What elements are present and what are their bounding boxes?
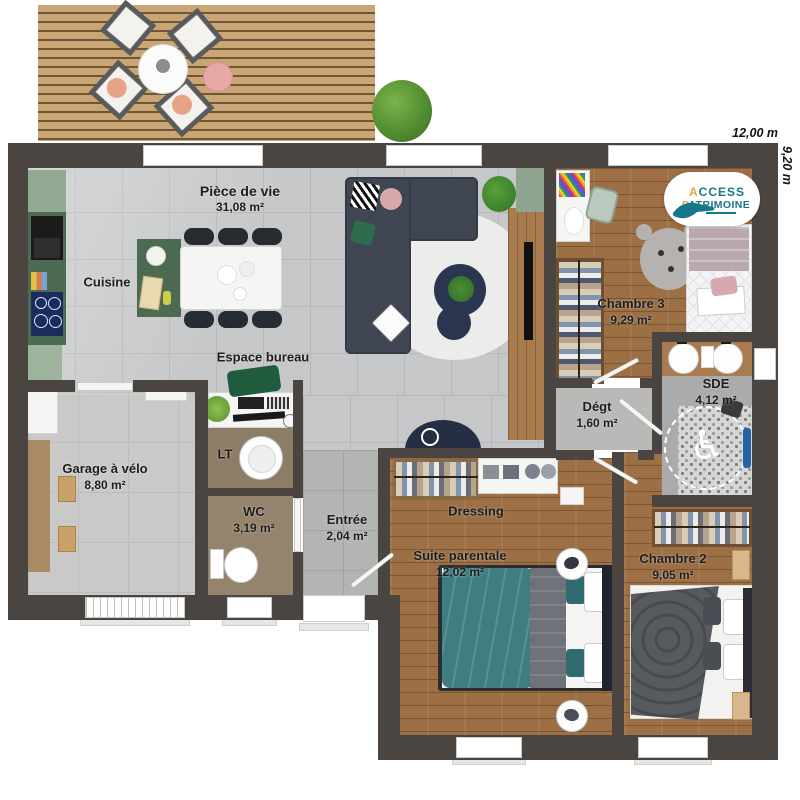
induction-hob xyxy=(31,292,63,336)
window-sde xyxy=(754,348,776,380)
kitchen-shelf-items xyxy=(31,272,47,290)
dining-chair xyxy=(252,311,282,328)
terrace-side-table xyxy=(203,62,233,92)
wc-interior-door xyxy=(294,498,301,552)
suite-nightstand xyxy=(556,548,588,580)
label-espace-bureau: Espace bureau xyxy=(217,350,310,367)
dimension-width: 12,00 m xyxy=(700,126,778,140)
suite-bed xyxy=(438,565,614,691)
wall-lt-wc xyxy=(208,488,293,496)
front-door xyxy=(303,595,365,622)
label-garage: Garage à vélo8,80 m² xyxy=(62,461,147,493)
dressing-cabinet xyxy=(560,487,584,505)
wheelchair-icon: ♿ xyxy=(683,418,731,474)
wall-garage-east xyxy=(195,380,208,595)
wall-accent-green xyxy=(516,168,544,212)
kitchen-range xyxy=(31,216,63,260)
step-wc xyxy=(222,619,277,626)
wall-sde-west xyxy=(652,332,662,454)
garage-interior-door xyxy=(77,382,133,391)
label-chambre2: Chambre 29,05 m² xyxy=(639,551,706,583)
label-cuisine: Cuisine xyxy=(84,275,131,292)
pillow-pink xyxy=(380,188,402,210)
dimension-height: 9,20 m xyxy=(780,146,794,216)
chambre2-nightstand xyxy=(732,550,750,580)
wall-wc-east-a xyxy=(293,380,303,498)
wall-sde-chambre2 xyxy=(652,495,752,507)
chambre2-wardrobe xyxy=(652,509,752,547)
dining-chair xyxy=(184,228,214,245)
wall-sde-north xyxy=(652,332,752,342)
suite-nightstand xyxy=(556,700,588,732)
window-living xyxy=(386,145,482,166)
tree xyxy=(372,80,432,142)
label-chambre3: Chambre 39,29 m² xyxy=(597,296,664,328)
garage-stool xyxy=(58,526,76,552)
label-suite-parentale: Suite parentale12,02 m² xyxy=(413,548,506,580)
label-dressing: Dressing xyxy=(448,504,504,521)
dining-chair xyxy=(218,311,248,328)
chambre2-nightstand xyxy=(732,692,750,720)
terrace-table xyxy=(138,44,188,94)
step-garage xyxy=(80,619,190,626)
garage-exterior-door xyxy=(85,597,185,618)
wall-degt-north-b xyxy=(640,378,654,388)
sde-vanity xyxy=(662,338,752,376)
step-entrance xyxy=(299,623,369,631)
wall-south-right xyxy=(378,735,778,760)
pillow-checkered xyxy=(350,181,380,211)
side-table xyxy=(437,306,471,340)
wall-living-chambre3 xyxy=(544,166,556,456)
label-degt: Dégt1,60 m² xyxy=(576,399,617,431)
floor-plan: 12,00 m 9,20 m xyxy=(0,0,800,800)
window-chambre2 xyxy=(638,737,708,758)
window-suite xyxy=(456,737,522,758)
brand-logo: ACCESS PATRIMOINE xyxy=(664,172,760,226)
dining-chair xyxy=(252,228,282,245)
wall-suite-west xyxy=(378,448,390,735)
wall-west xyxy=(8,143,28,620)
window-kitchen xyxy=(143,145,263,166)
wall-degt-north-a xyxy=(556,378,592,388)
wall-east xyxy=(752,143,778,760)
wall-degt-south-a xyxy=(556,450,594,460)
dressing-shelf xyxy=(478,458,558,494)
toilet-bowl xyxy=(224,547,258,583)
dining-table xyxy=(180,246,282,310)
kitchen-cabinet-lower xyxy=(28,345,62,381)
wall-wc-east-b xyxy=(293,552,303,595)
wall-degt-south-b xyxy=(638,450,654,460)
dining-chair xyxy=(218,228,248,245)
window-chambre3 xyxy=(608,145,708,166)
chambre3-bed xyxy=(686,224,752,338)
kitchen-island xyxy=(137,239,181,317)
label-piece-de-vie: Pièce de vie31,08 m² xyxy=(200,182,280,216)
towel-rail xyxy=(743,428,751,468)
label-sde: SDE4,12 m² xyxy=(695,376,736,408)
tv xyxy=(524,242,533,340)
chambre3-desk xyxy=(556,170,590,242)
wall-suite-chambre2 xyxy=(612,452,624,735)
wall-garage-north-a xyxy=(28,380,75,392)
plant xyxy=(482,176,516,212)
hand-icon xyxy=(671,196,717,220)
label-lt: LT xyxy=(218,447,233,464)
toilet-tank xyxy=(210,549,224,579)
wall-dressing-north xyxy=(390,448,556,458)
label-entree: Entrée2,04 m² xyxy=(326,512,367,544)
dining-chair xyxy=(184,311,214,328)
label-wc: WC3,19 m² xyxy=(233,504,274,536)
wc-exterior-window xyxy=(227,597,272,618)
kitchen-cabinet-upper xyxy=(28,170,66,212)
dressing-rail xyxy=(394,458,478,500)
garage-cabinet xyxy=(26,390,58,434)
washing-machine xyxy=(239,436,283,480)
